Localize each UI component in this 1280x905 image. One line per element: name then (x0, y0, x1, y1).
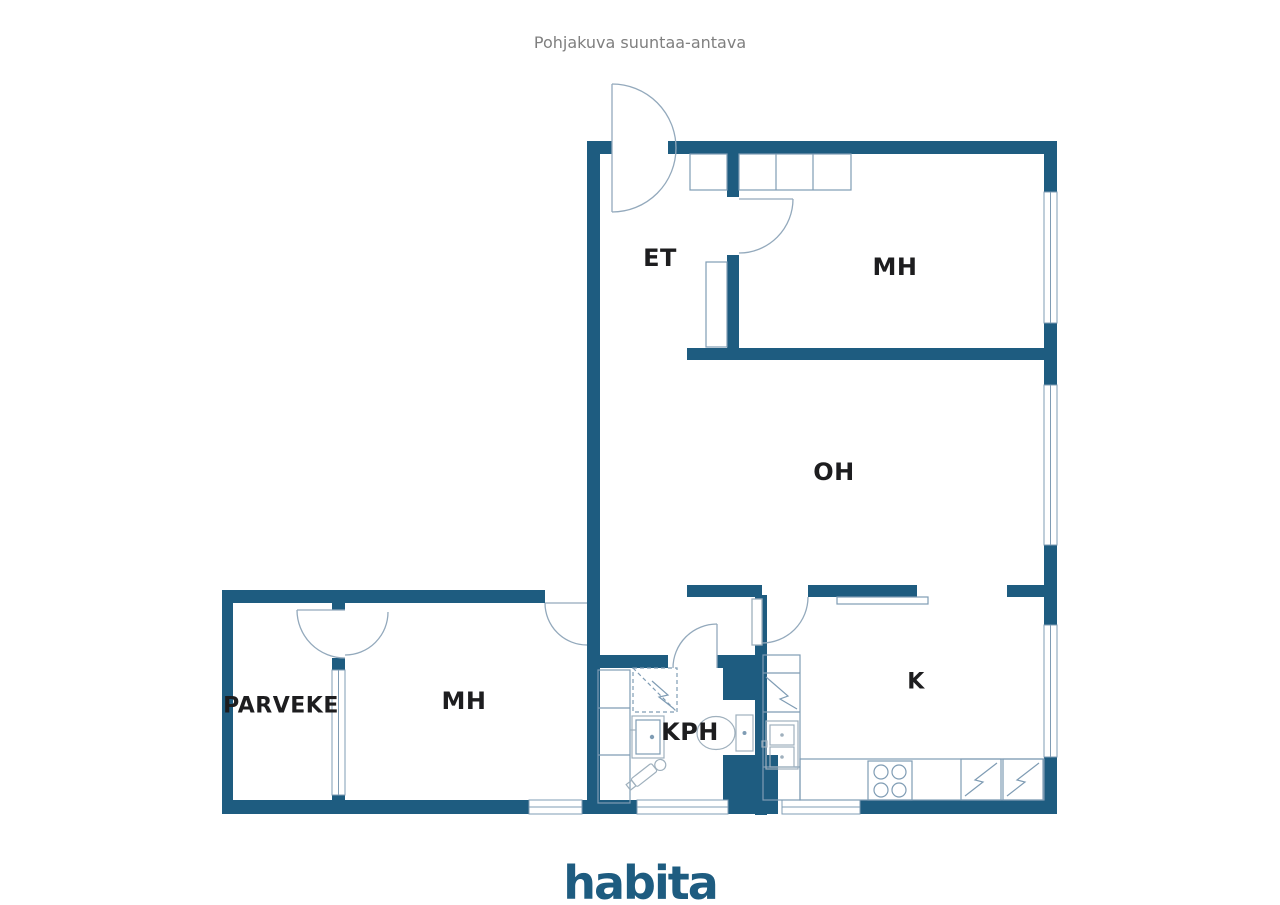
room-label-living: OH (813, 458, 855, 486)
wall (582, 800, 637, 814)
shower-symbol (652, 681, 673, 708)
hand-shower-mixer (625, 756, 668, 793)
window (529, 800, 582, 814)
room-label-kitchen: K (907, 670, 925, 695)
floorplan-drawing (0, 0, 1280, 905)
entry-door-arc (612, 84, 676, 212)
kitchen-fixtures (762, 597, 1044, 800)
appliance-dishwasher (961, 759, 1001, 800)
wall (1044, 141, 1057, 192)
washing-machine (630, 716, 664, 758)
wall (668, 141, 1057, 154)
window (1044, 192, 1057, 323)
floorplan-page: Pohjakuva suuntaa-antava (0, 0, 1280, 905)
wall (687, 585, 762, 597)
kitchen-door-leaf (752, 599, 762, 645)
wall (727, 255, 739, 360)
window (782, 800, 860, 814)
kitchen-door-arc (762, 597, 808, 643)
room-label-bedroom-bottom: MH (442, 687, 487, 715)
closet-row (739, 154, 851, 190)
bathroom-door-arc (673, 624, 717, 668)
door-arc (545, 603, 587, 645)
window (1044, 385, 1057, 545)
window (1044, 625, 1057, 757)
door-arc (739, 199, 793, 253)
wall (222, 800, 332, 814)
wall (332, 800, 529, 814)
walls (222, 141, 1057, 815)
counter-lip (837, 597, 928, 604)
kitchen-bottom-counter (800, 759, 1044, 800)
appliance-freezer (1003, 759, 1043, 800)
room-label-balcony: PARVEKE (223, 694, 339, 719)
balcony-window (332, 670, 345, 795)
balcony-door-arc (297, 610, 388, 658)
wall (1044, 545, 1057, 625)
room-label-bathroom: KPH (661, 718, 719, 746)
refrigerator-symbol (766, 677, 797, 709)
closet (690, 154, 727, 190)
wall (727, 154, 739, 197)
cabinet-column (598, 670, 630, 803)
wall (1007, 585, 1044, 597)
wall (687, 348, 1044, 360)
wall (332, 658, 345, 670)
window (637, 800, 728, 814)
wall (345, 590, 545, 603)
wall (332, 590, 345, 610)
closet (706, 262, 727, 347)
habita-logo: habita (0, 856, 1280, 905)
stove (868, 761, 912, 800)
wall (860, 800, 1057, 814)
room-label-bedroom-top: MH (873, 253, 918, 281)
wall (1044, 323, 1057, 385)
wall (587, 655, 668, 668)
wall (808, 585, 917, 597)
room-label-entry: ET (643, 244, 677, 272)
wall (222, 590, 332, 603)
